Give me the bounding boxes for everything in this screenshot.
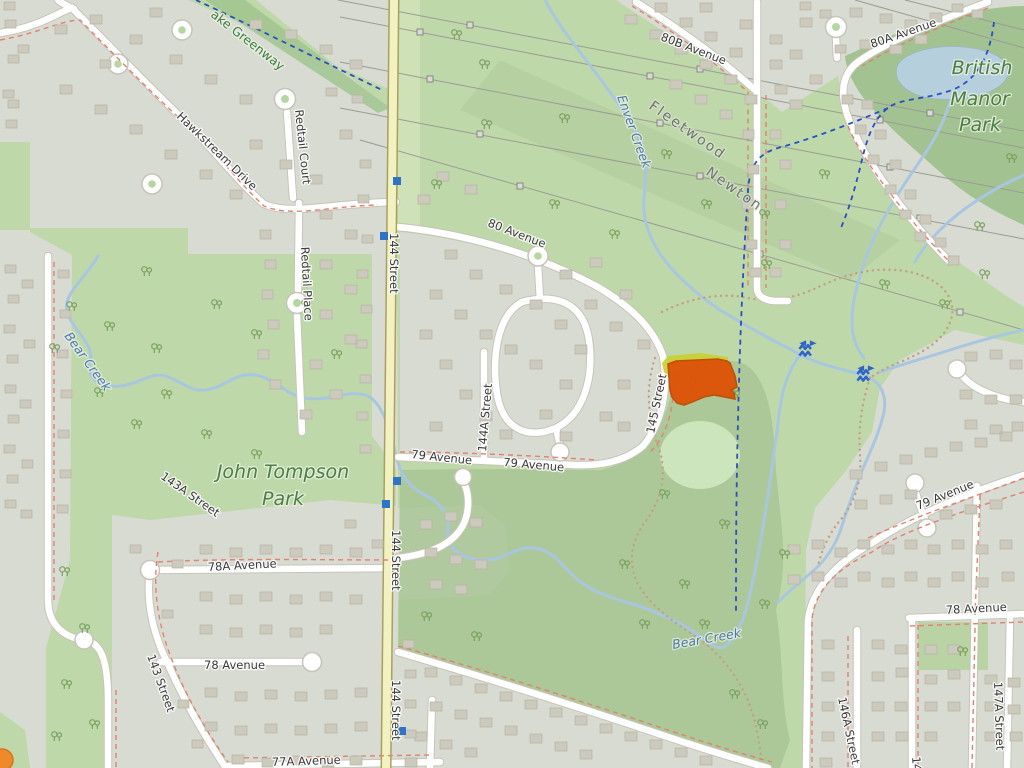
street-label-147a-street: 147A Street [991,682,1007,751]
park-label-british-2: Manor [950,88,1011,110]
street-label-144-street-2: 144 Street [389,530,403,591]
street-label-144-street-3: 144 Street [389,680,403,741]
park-label-british-1: British [952,57,1013,79]
street-label-144-street-1: 144 Street [387,233,401,294]
street-label-77a-avenue: 77A Avenue [272,753,341,768]
park-label-john-tompson-1: John Tompson [213,461,349,483]
park-label-british-3: Park [959,114,1002,136]
park-label-john-tompson-2: Park [262,488,305,510]
map-art: ake Greenway Hawkstream Drive Redtail Co… [0,0,1024,768]
parcel-highlight [668,359,737,405]
selected-parcel[interactable] [662,353,737,405]
map-canvas[interactable]: ake Greenway Hawkstream Drive Redtail Co… [0,0,1024,768]
street-label-78-avenue-l: 78 Avenue [204,658,265,672]
